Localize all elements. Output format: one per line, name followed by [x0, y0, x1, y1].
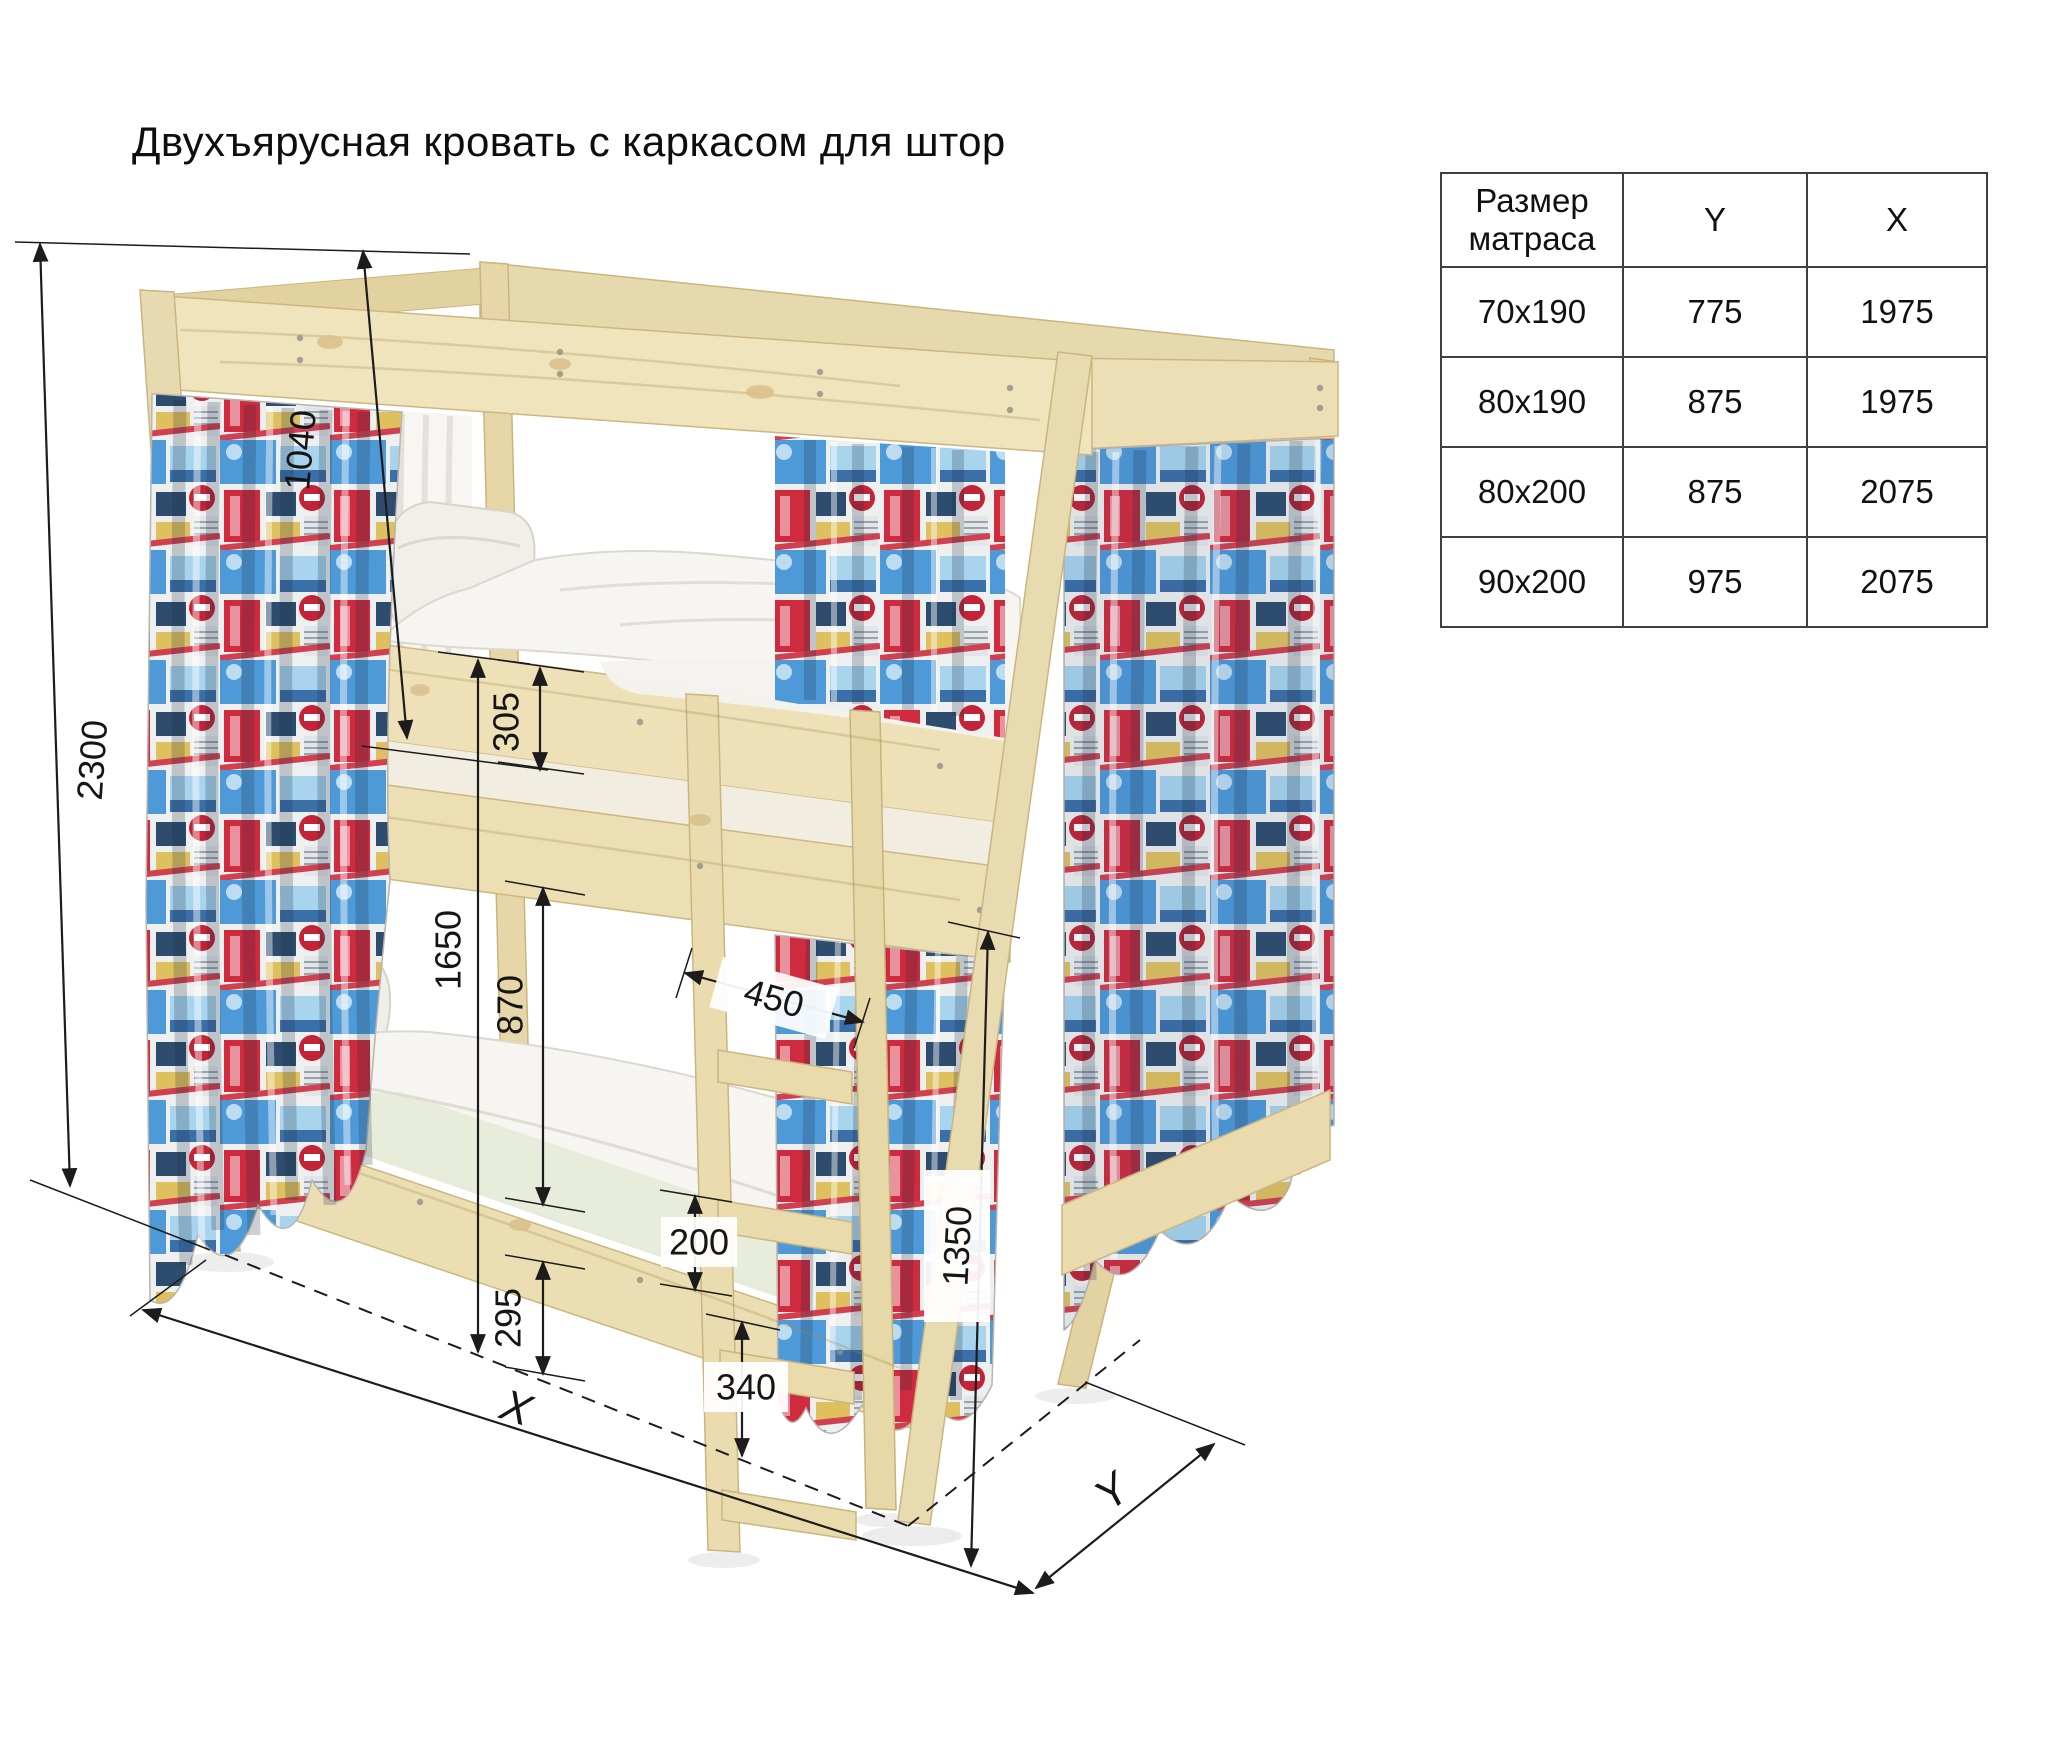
dim-total-height: 2300: [40, 244, 115, 1186]
dim-label-y: Y: [1085, 1462, 1141, 1520]
dim-depth-y: Y: [1036, 1444, 1214, 1588]
dim-label-200: 200: [669, 1222, 729, 1263]
dim-label-1650: 1650: [428, 910, 469, 990]
dim-label-2300: 2300: [69, 719, 115, 802]
canopy-right-rail: [1060, 358, 1338, 450]
dim-label-305: 305: [486, 692, 527, 752]
dim-label-x: X: [494, 1380, 539, 1436]
dim-label-1040: 1040: [276, 408, 324, 491]
dim-label-340: 340: [716, 1367, 776, 1408]
dim-label-295: 295: [488, 1288, 529, 1348]
bunk-bed-diagram: 2300 1040 305 1650 870 295: [0, 0, 2048, 1757]
dim-label-870: 870: [490, 975, 531, 1035]
dim-label-1350: 1350: [934, 1205, 979, 1287]
page: Двухъярусная кровать с каркасом для штор…: [0, 0, 2048, 1757]
